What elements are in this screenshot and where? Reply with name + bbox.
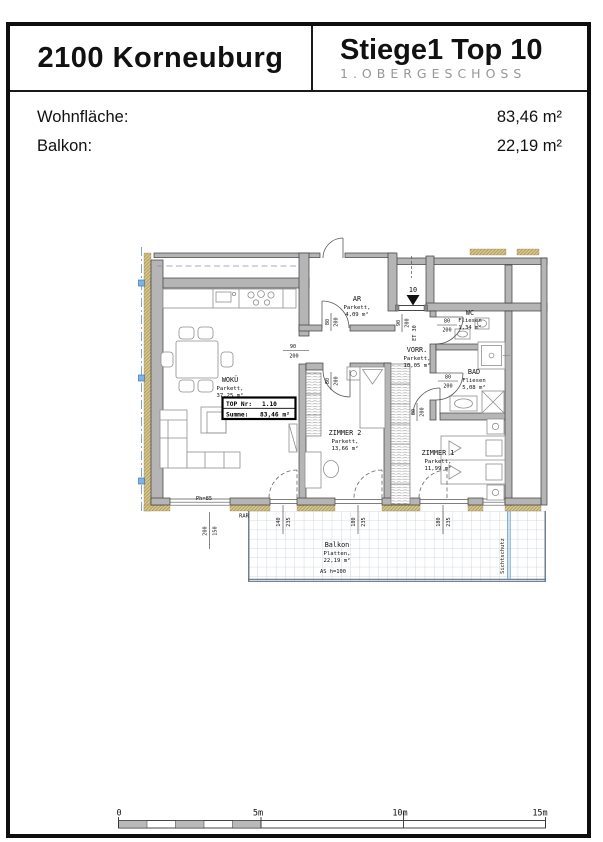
living-area-label: Wohnfläche: [37, 103, 128, 132]
title-block-location: 2100 Korneuburg [10, 26, 313, 90]
page-title-unit: Stiege1 Top 10 [340, 35, 587, 65]
living-area-value: 83,46 m² [497, 103, 562, 132]
area-summary: Wohnfläche: 83,46 m² Balkon: 22,19 m² [10, 92, 587, 161]
area-row-living: Wohnfläche: 83,46 m² [37, 103, 562, 132]
area-row-balcony: Balkon: 22,19 m² [37, 132, 562, 161]
title-block: 2100 Korneuburg Stiege1 Top 10 1.OBERGES… [10, 26, 587, 92]
balcony-area-value: 22,19 m² [497, 132, 562, 161]
page-frame: 2100 Korneuburg Stiege1 Top 10 1.OBERGES… [6, 22, 591, 838]
title-block-unit: Stiege1 Top 10 1.OBERGESCHOSS [313, 26, 587, 90]
page-subtitle-floor: 1.OBERGESCHOSS [340, 66, 587, 81]
page-title-location: 2100 Korneuburg [38, 42, 284, 75]
balcony-area-label: Balkon: [37, 132, 92, 161]
